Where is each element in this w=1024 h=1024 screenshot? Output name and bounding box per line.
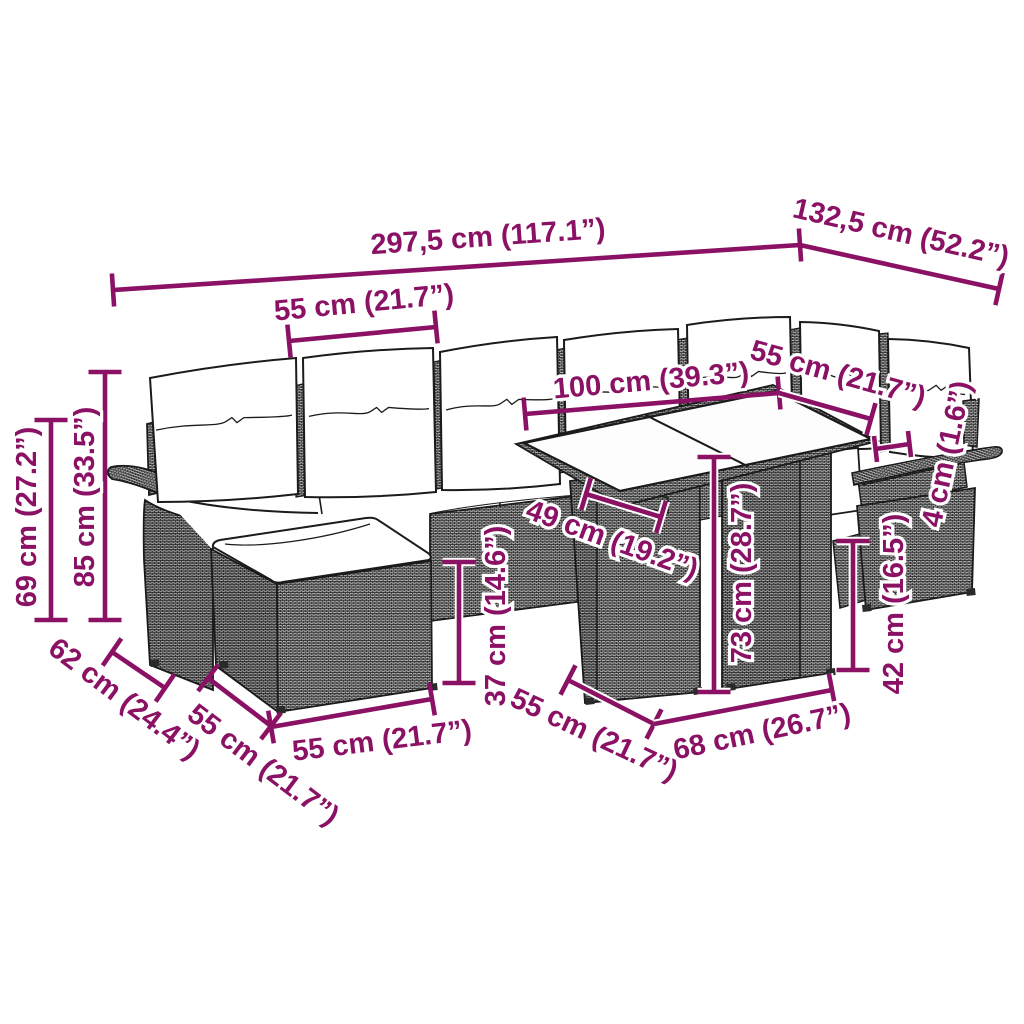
svg-text:69 cm (27.2”): 69 cm (27.2”) [11, 427, 43, 608]
svg-text:42 cm (16.5”): 42 cm (16.5”) [878, 514, 910, 695]
svg-text:73 cm (28.7”): 73 cm (28.7”) [726, 483, 758, 664]
svg-text:37 cm (14.6”): 37 cm (14.6”) [480, 526, 512, 707]
svg-text:85 cm (33.5”): 85 cm (33.5”) [69, 407, 101, 588]
